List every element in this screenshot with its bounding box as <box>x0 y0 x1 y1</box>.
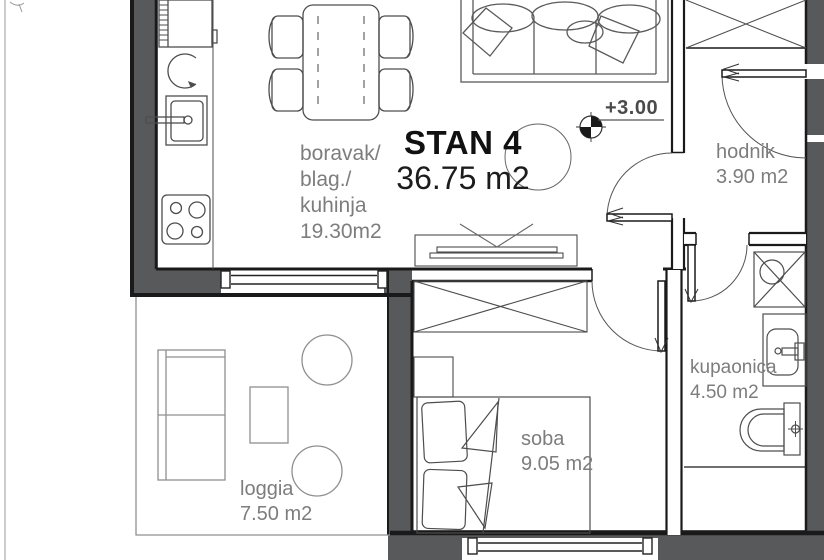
living-room-door <box>607 153 672 225</box>
apartment-title-block: STAN 4 36.75 m2 <box>386 125 540 195</box>
sofa <box>461 0 668 82</box>
dining-chair <box>269 69 303 111</box>
loggia-chair <box>302 335 352 385</box>
loggia-window <box>221 271 387 288</box>
tv-cabinet <box>415 224 577 266</box>
apartment-area: 36.75 m2 <box>386 161 540 195</box>
living-room-label-line: blag./ <box>300 167 382 193</box>
bedroom-label: soba 9.05 m2 <box>521 427 593 477</box>
fridge <box>159 0 217 47</box>
seat-cushion <box>567 21 603 43</box>
loggia-area: 7.50 m2 <box>240 502 312 527</box>
hallway-area: 3.90 m2 <box>716 165 788 190</box>
bathroom-area: 4.50 m2 <box>690 380 777 405</box>
hallway-closet <box>686 0 806 48</box>
bedroom-area: 9.05 m2 <box>521 452 593 477</box>
hallway-label: hodnik 3.90 m2 <box>716 140 788 190</box>
elevation-label: +3.00 <box>605 97 658 120</box>
bedroom-name: soba <box>521 427 593 452</box>
dining-chair <box>379 16 413 58</box>
dining-table <box>303 5 379 120</box>
partition-walls <box>592 0 806 535</box>
living-room-label-line: kuhinja <box>300 193 382 219</box>
hallway-name: hodnik <box>716 140 788 165</box>
loggia-table <box>250 387 288 443</box>
loggia-bench <box>158 350 225 480</box>
apartment-title: STAN 4 <box>386 125 540 161</box>
living-room-label-line: 19.30m2 <box>300 219 382 245</box>
toilet <box>740 403 803 455</box>
bedroom-left-wall <box>388 269 412 535</box>
water-heater <box>168 54 196 88</box>
left-wall <box>130 0 158 297</box>
bottom-window-notch <box>462 538 658 560</box>
shower <box>754 252 805 307</box>
stove <box>162 195 210 244</box>
living-room-label-line: boravak/ <box>300 141 382 167</box>
floor-plan: boravak/ blag./ kuhinja 19.30m2 STAN 4 3… <box>0 0 824 560</box>
right-wall-joint-gap <box>806 135 824 142</box>
structure-lines <box>130 0 824 535</box>
dining-set <box>269 5 413 120</box>
bathroom-label: kupaonica 4.50 m2 <box>690 355 777 405</box>
nightstand <box>414 357 453 397</box>
bathroom-name: kupaonica <box>690 355 777 380</box>
bathroom-door <box>685 245 747 302</box>
loggia-name: loggia <box>240 477 312 502</box>
living-room-label: boravak/ blag./ kuhinja 19.30m2 <box>300 141 382 245</box>
bedroom-door <box>592 281 668 352</box>
dining-chair <box>269 16 303 58</box>
right-wall <box>806 0 824 560</box>
window-stub-left <box>158 269 221 297</box>
page-edge-line <box>5 0 24 560</box>
loggia-label: loggia 7.50 m2 <box>240 477 312 527</box>
dining-chair <box>379 69 413 111</box>
wardrobe <box>414 281 587 332</box>
floor-plan-drawing <box>0 0 824 560</box>
